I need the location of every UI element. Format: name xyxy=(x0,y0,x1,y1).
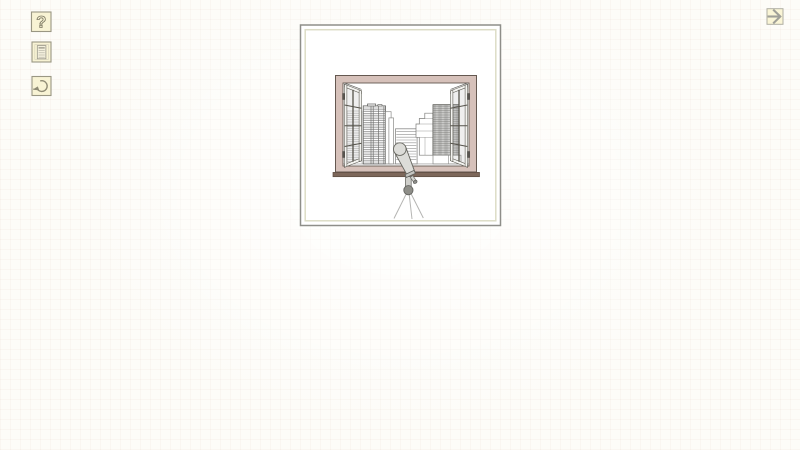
svg-text:?: ? xyxy=(36,14,46,32)
